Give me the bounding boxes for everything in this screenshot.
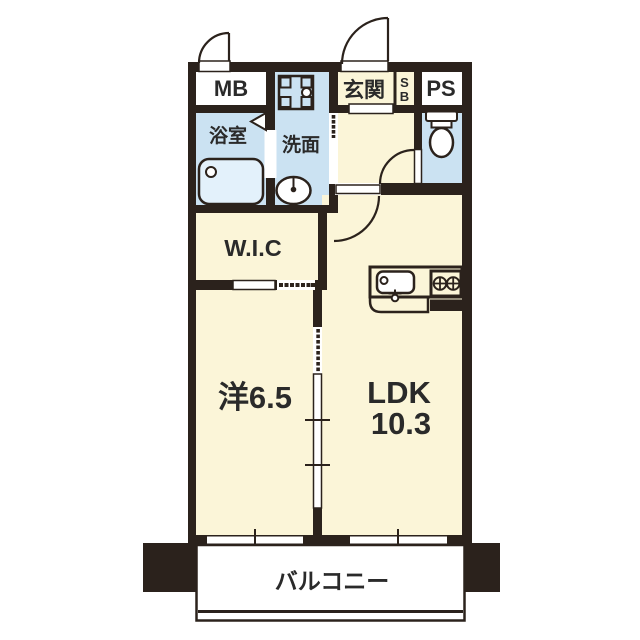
washroom-label: 洗面	[282, 133, 320, 156]
pillar-right	[465, 543, 500, 592]
divider-entrance-shoe-box	[394, 72, 397, 105]
wic-label: W.I.C	[224, 235, 281, 261]
meter-box-label: MB	[214, 76, 248, 101]
balcony-label: バルコニー	[275, 568, 390, 594]
ldk-size-label: 10.3	[371, 406, 431, 441]
wall-left	[188, 62, 196, 545]
bathroom-door-opening	[265, 130, 277, 178]
floor-plan: MB 玄関 S B PS 浴室 洗面 W.I.C 洋6.5 LDK 10.3 バ…	[0, 0, 640, 640]
ldk-label: LDK	[367, 375, 431, 410]
wall-wic-ldk	[318, 205, 327, 290]
sliding-door-western-ldk	[314, 374, 322, 508]
meter-box-door-leaf	[199, 61, 230, 72]
entrance-door-leaf	[341, 61, 388, 72]
toilet-door-leaf	[415, 150, 422, 184]
entrance-door-swing	[342, 18, 388, 64]
wall-under-shoe-box	[393, 105, 414, 113]
western-room-label: 洋6.5	[218, 380, 292, 415]
counter-dark-block	[430, 300, 462, 312]
ldk-door-closed-leaf	[336, 185, 380, 194]
shoe-box-label-s: S	[400, 75, 409, 90]
wall-right	[462, 62, 472, 545]
pillar-left	[143, 543, 196, 592]
wall-under-entrance-left	[338, 105, 349, 113]
pipe-space-label: PS	[426, 76, 455, 101]
shoe-box-label-b: B	[400, 89, 409, 104]
entrance-label: 玄関	[343, 78, 385, 102]
washroom-door-dashes	[332, 115, 336, 139]
wic-door-opening	[233, 281, 275, 290]
bathroom-label: 浴室	[209, 124, 247, 147]
toilet-icon	[426, 112, 457, 158]
entrance-step-opening	[349, 104, 393, 114]
partition-dashed-strip	[313, 327, 322, 374]
washroom-door-opening	[329, 138, 338, 184]
meter-box-door-swing	[199, 33, 229, 63]
wall-under-meter-box	[188, 105, 275, 113]
bathtub-icon	[199, 159, 263, 204]
wall-above-wic	[188, 205, 338, 213]
ldk-area	[322, 195, 462, 535]
floor-plan-canvas: MB 玄関 S B PS 浴室 洗面 W.I.C 洋6.5 LDK 10.3 バ…	[0, 0, 640, 640]
